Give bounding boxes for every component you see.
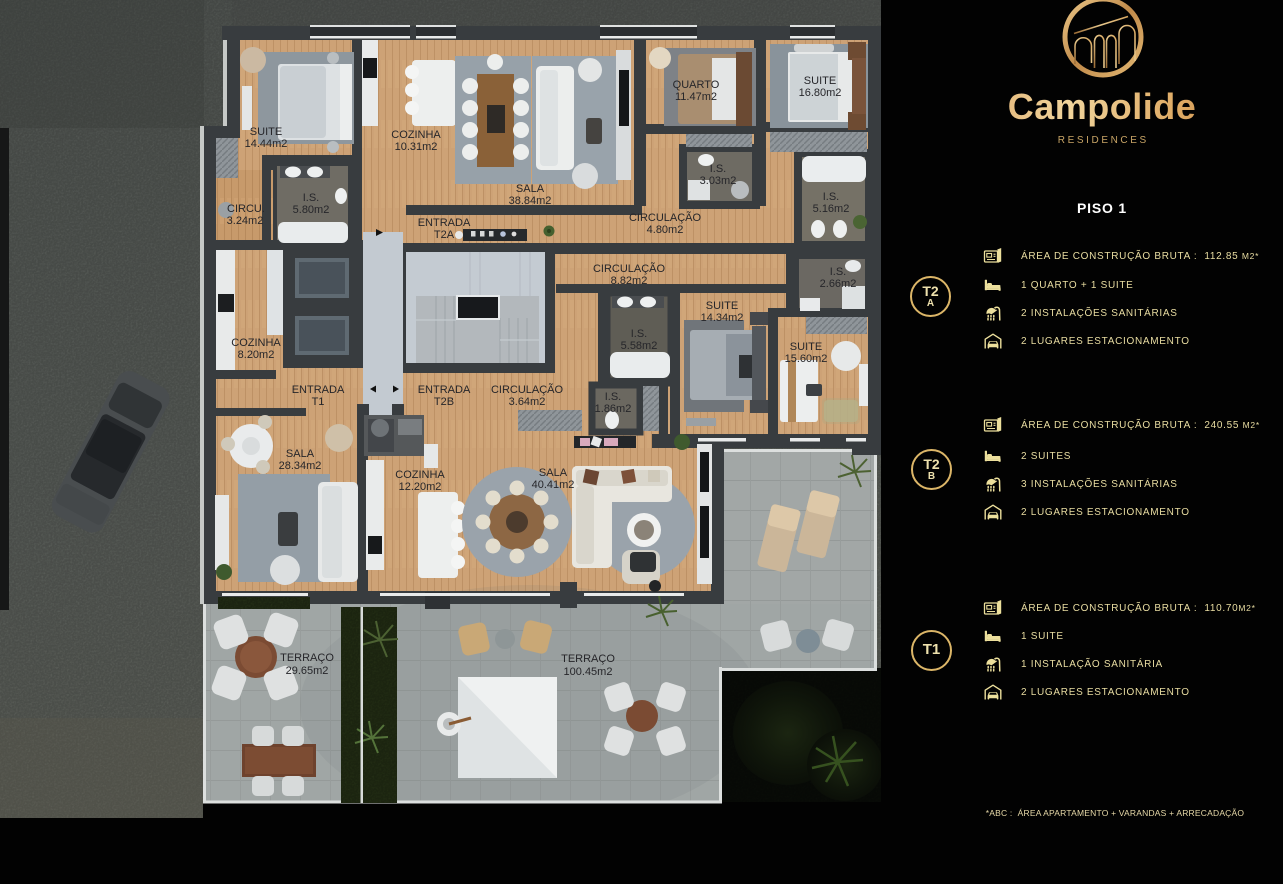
svg-text:11.47m2: 11.47m2: [675, 91, 717, 103]
svg-text:ENTRADA: ENTRADA: [292, 384, 345, 396]
svg-text:TERRAÇO: TERRAÇO: [561, 653, 615, 665]
svg-text:COZINHA: COZINHA: [395, 469, 445, 481]
svg-text:T1: T1: [312, 396, 325, 408]
svg-text:COZINHA: COZINHA: [391, 129, 441, 141]
svg-text:15.60m2: 15.60m2: [785, 353, 828, 365]
svg-text:5.16m2: 5.16m2: [813, 203, 850, 215]
svg-text:I.S.: I.S.: [605, 391, 622, 403]
svg-text:T2B: T2B: [434, 396, 454, 408]
svg-text:5.58m2: 5.58m2: [621, 340, 658, 352]
svg-text:TERRAÇO: TERRAÇO: [280, 652, 334, 664]
svg-text:38.84m2: 38.84m2: [509, 195, 552, 207]
svg-text:12.20m2: 12.20m2: [399, 481, 442, 493]
svg-text:1.86m2: 1.86m2: [595, 403, 632, 415]
svg-text:CIRCULAÇÃO: CIRCULAÇÃO: [629, 211, 702, 224]
svg-text:SUITE: SUITE: [790, 341, 822, 353]
svg-text:SALA: SALA: [539, 467, 568, 479]
svg-text:COZINHA: COZINHA: [231, 337, 281, 349]
svg-text:ENTRADA: ENTRADA: [418, 384, 471, 396]
svg-text:3.64m2: 3.64m2: [509, 396, 546, 408]
svg-text:QUARTO: QUARTO: [673, 79, 720, 91]
svg-text:40.41m2: 40.41m2: [532, 479, 575, 491]
svg-text:8.20m2: 8.20m2: [238, 349, 275, 361]
svg-text:SALA: SALA: [516, 183, 545, 195]
svg-text:SUITE: SUITE: [250, 126, 282, 138]
svg-text:I.S.: I.S.: [631, 328, 648, 340]
svg-text:ENTRADA: ENTRADA: [418, 217, 471, 229]
svg-text:100.45m2: 100.45m2: [564, 666, 613, 678]
svg-text:16.80m2: 16.80m2: [799, 87, 842, 99]
svg-text:CIRCULAÇÃO: CIRCULAÇÃO: [491, 383, 564, 396]
svg-text:SALA: SALA: [286, 448, 315, 460]
svg-text:14.44m2: 14.44m2: [245, 138, 288, 150]
svg-text:3.24m2: 3.24m2: [227, 215, 264, 227]
svg-text:I.S.: I.S.: [823, 191, 840, 203]
svg-text:2.66m2: 2.66m2: [820, 278, 857, 290]
svg-text:T2A: T2A: [434, 229, 455, 241]
svg-text:I.S.: I.S.: [830, 266, 847, 278]
svg-text:8.82m2: 8.82m2: [611, 275, 648, 287]
svg-text:4.80m2: 4.80m2: [647, 224, 684, 236]
svg-text:10.31m2: 10.31m2: [395, 141, 438, 153]
svg-text:14.34m2: 14.34m2: [701, 312, 744, 324]
svg-text:CIRCULAÇÃO: CIRCULAÇÃO: [593, 262, 666, 275]
svg-text:SUITE: SUITE: [706, 300, 738, 312]
svg-text:29.65m2: 29.65m2: [286, 665, 329, 677]
svg-text:I.S.: I.S.: [710, 163, 727, 175]
svg-text:5.80m2: 5.80m2: [293, 204, 330, 216]
svg-text:28.34m2: 28.34m2: [279, 460, 322, 472]
svg-text:SUITE: SUITE: [804, 75, 836, 87]
svg-text:I.S.: I.S.: [303, 192, 320, 204]
svg-text:3.03m2: 3.03m2: [700, 175, 737, 187]
svg-text:CIRCU.: CIRCU.: [227, 203, 265, 215]
